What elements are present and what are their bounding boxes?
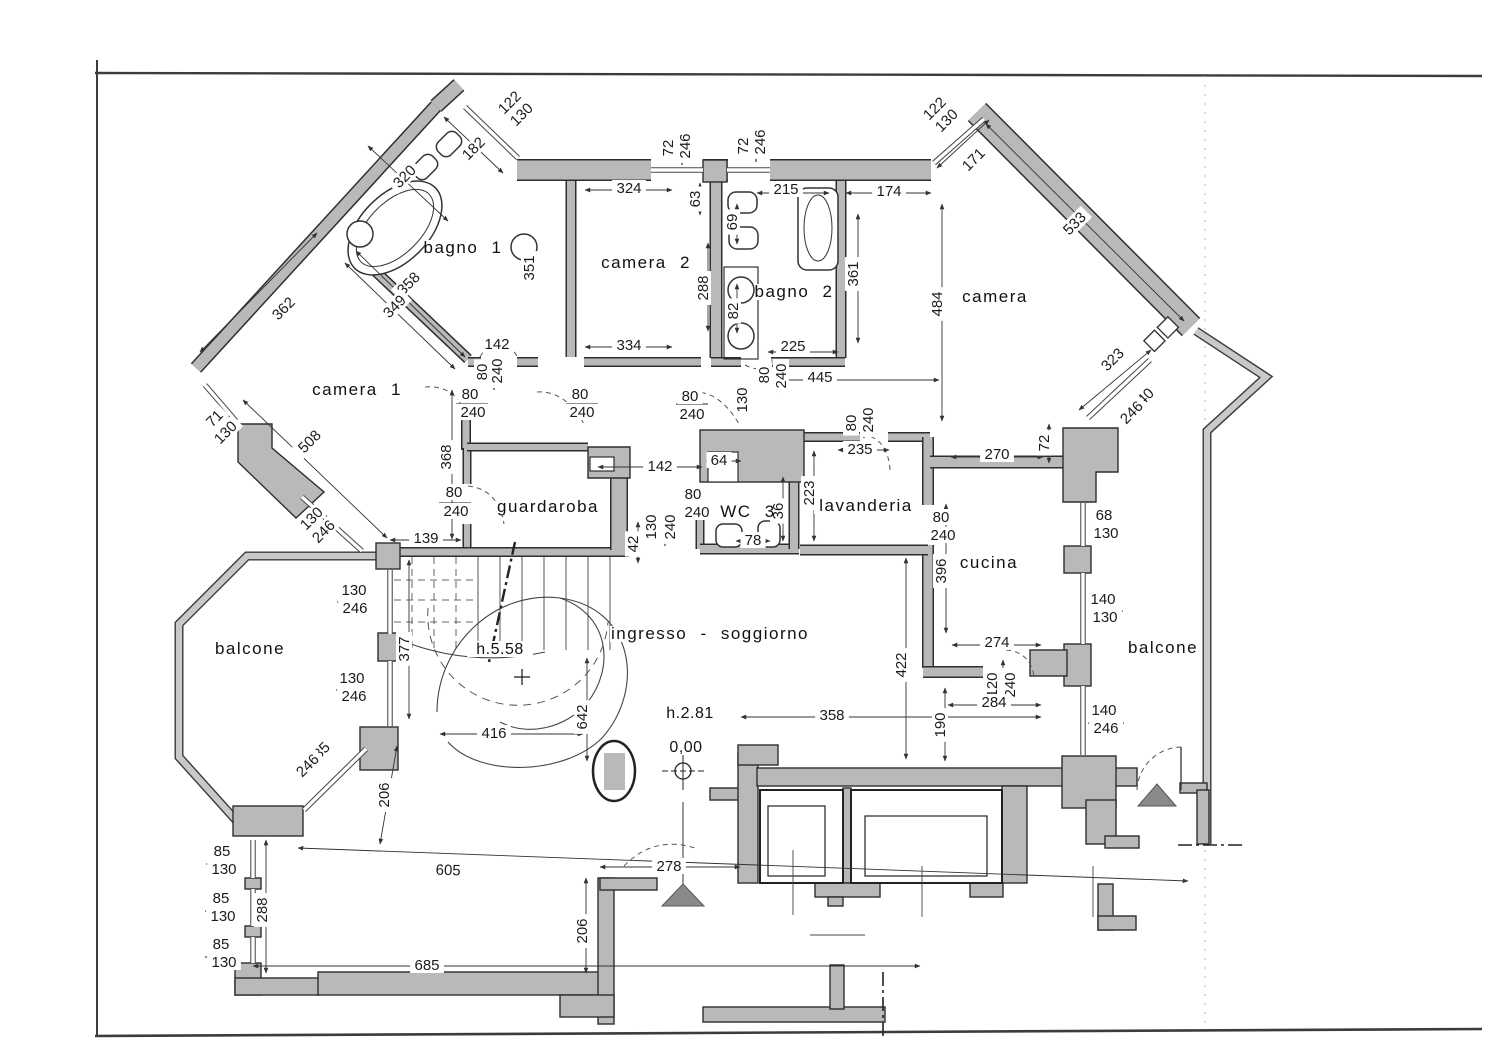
room-label: camera 1 bbox=[312, 380, 402, 399]
dimension-label: 324 bbox=[612, 180, 646, 197]
svg-text:235: 235 bbox=[847, 441, 872, 458]
svg-text:206: 206 bbox=[376, 782, 393, 807]
svg-text:0,00: 0,00 bbox=[669, 739, 702, 756]
dimension-label: 240 bbox=[489, 354, 506, 388]
dimension-label: 130 bbox=[207, 954, 241, 971]
svg-text:685: 685 bbox=[414, 957, 439, 974]
dimension-label: 130 bbox=[1089, 525, 1123, 542]
svg-text:69: 69 bbox=[724, 214, 741, 231]
svg-text:130: 130 bbox=[211, 954, 236, 971]
dimension-label: 206 bbox=[376, 778, 393, 812]
svg-text:240: 240 bbox=[569, 404, 594, 421]
svg-text:72: 72 bbox=[735, 138, 752, 155]
dimension-label: 240 bbox=[675, 406, 709, 423]
dimension-label: 85 bbox=[208, 890, 233, 907]
svg-text:351: 351 bbox=[521, 255, 538, 280]
svg-text:130: 130 bbox=[211, 861, 236, 878]
svg-text:h.5.58: h.5.58 bbox=[476, 641, 523, 658]
dimension-label: 377 bbox=[396, 632, 413, 666]
svg-text:bagno 2: bagno 2 bbox=[755, 282, 834, 301]
dimension-label: 368 bbox=[438, 440, 455, 474]
svg-text:240: 240 bbox=[662, 514, 679, 539]
dimension-label: 140 bbox=[1087, 702, 1121, 719]
svg-text:206: 206 bbox=[574, 918, 591, 943]
svg-text:64: 64 bbox=[711, 452, 728, 469]
dimension-label: 246 bbox=[1089, 720, 1123, 737]
svg-text:80: 80 bbox=[685, 486, 702, 503]
svg-text:358: 358 bbox=[819, 707, 844, 724]
svg-text:camera 1: camera 1 bbox=[312, 380, 402, 399]
entrance-triangle-icon bbox=[662, 884, 704, 906]
room-label: ingresso - soggiorno bbox=[610, 624, 810, 643]
dimension-label: 445 bbox=[803, 369, 837, 386]
dimension-label: 215 bbox=[769, 181, 803, 198]
dimension-label: 274 bbox=[980, 634, 1014, 651]
svg-text:215: 215 bbox=[773, 181, 798, 198]
dimension-label: 68 bbox=[1091, 507, 1116, 524]
dimension-label: 284 bbox=[977, 694, 1011, 711]
dimension-label: 42 bbox=[625, 531, 642, 556]
svg-text:camera 2: camera 2 bbox=[601, 253, 691, 272]
svg-text:240: 240 bbox=[679, 406, 704, 423]
svg-text:balcone: balcone bbox=[1128, 638, 1198, 657]
duct-shafts bbox=[1144, 317, 1179, 352]
svg-text:72: 72 bbox=[660, 140, 677, 157]
svg-text:288: 288 bbox=[695, 275, 712, 300]
svg-text:130: 130 bbox=[643, 514, 660, 539]
svg-text:72: 72 bbox=[1036, 435, 1053, 452]
dimension-label: 130 bbox=[207, 861, 241, 878]
dimension-label: 416 bbox=[477, 725, 511, 742]
dimension-label: 190 bbox=[932, 708, 949, 742]
dimension-label: 80 bbox=[567, 386, 592, 403]
svg-text:142: 142 bbox=[484, 336, 509, 353]
sink-icon bbox=[728, 323, 754, 349]
dimension-label: 334 bbox=[612, 337, 646, 354]
svg-text:82: 82 bbox=[725, 303, 742, 320]
dimension-label: 80 bbox=[843, 410, 860, 435]
svg-text:368: 368 bbox=[438, 444, 455, 469]
svg-text:240: 240 bbox=[773, 363, 790, 388]
dimension-label: 240 bbox=[860, 403, 877, 437]
dimension-label: 358 bbox=[815, 707, 849, 724]
svg-text:484: 484 bbox=[929, 291, 946, 316]
svg-text:80: 80 bbox=[843, 415, 860, 432]
dimension-label: 240 bbox=[773, 359, 790, 393]
dimension-label: 80 bbox=[680, 486, 705, 503]
room-label: bagno 2 bbox=[755, 282, 834, 301]
svg-text:361: 361 bbox=[845, 261, 862, 286]
annotation-label: h.2.81 bbox=[657, 705, 723, 722]
room-label: bagno 1 bbox=[424, 238, 503, 257]
dimension-label: 246 bbox=[677, 129, 694, 163]
room-label: balcone bbox=[212, 639, 287, 658]
benchmark-icon bbox=[662, 752, 704, 790]
svg-text:80: 80 bbox=[756, 367, 773, 384]
dimension-label: 288 bbox=[254, 893, 271, 927]
svg-text:guardaroba: guardaroba bbox=[497, 497, 599, 516]
svg-text:63: 63 bbox=[687, 191, 704, 208]
entrance-triangle-icon bbox=[1138, 784, 1176, 806]
dimension-label: 130 bbox=[734, 383, 751, 417]
svg-text:bagno 1: bagno 1 bbox=[424, 238, 503, 257]
svg-text:80: 80 bbox=[572, 386, 589, 403]
svg-text:139: 139 bbox=[413, 530, 438, 547]
svg-text:78: 78 bbox=[745, 532, 762, 549]
dimension-label: 85 bbox=[208, 936, 233, 953]
room-label: lavanderia bbox=[814, 496, 918, 515]
room-label: WC 3 bbox=[720, 502, 776, 521]
dimension-label: 246 bbox=[337, 688, 371, 705]
svg-text:278: 278 bbox=[656, 858, 681, 875]
svg-text:190: 190 bbox=[932, 712, 949, 737]
room-label: guardaroba bbox=[496, 497, 600, 516]
dimension-label: 82 bbox=[725, 298, 742, 323]
svg-text:240: 240 bbox=[930, 527, 955, 544]
dimension-label: 240 bbox=[926, 527, 960, 544]
svg-text:270: 270 bbox=[984, 446, 1009, 463]
elevator-shaft bbox=[760, 790, 843, 883]
svg-text:246: 246 bbox=[341, 688, 366, 705]
svg-text:288: 288 bbox=[254, 897, 271, 922]
svg-text:142: 142 bbox=[647, 458, 672, 475]
dimension-label: 140 bbox=[1086, 591, 1120, 608]
svg-text:246: 246 bbox=[342, 600, 367, 617]
dimension-label: 130 bbox=[206, 908, 240, 925]
dimension-label: 130 bbox=[337, 582, 371, 599]
dimension-label: 85 bbox=[209, 843, 234, 860]
svg-text:284: 284 bbox=[981, 694, 1006, 711]
dimension-label: 362 bbox=[266, 291, 302, 327]
svg-text:68: 68 bbox=[1096, 507, 1113, 524]
dimension-label: 323 bbox=[1095, 342, 1131, 378]
svg-text:85: 85 bbox=[214, 843, 231, 860]
svg-text:cucina: cucina bbox=[960, 553, 1018, 572]
dimension-label: 72 bbox=[1036, 430, 1053, 455]
floorplan-drawing: 1221301823203583493623513247224663288334… bbox=[0, 0, 1500, 1060]
dimension-label: 80 bbox=[928, 509, 953, 526]
dimension-label: 80 bbox=[457, 386, 482, 403]
svg-text:422: 422 bbox=[893, 652, 910, 677]
svg-text:130: 130 bbox=[210, 908, 235, 925]
room-label: camera 2 bbox=[601, 253, 691, 272]
svg-text:42: 42 bbox=[625, 536, 642, 553]
svg-text:240: 240 bbox=[460, 404, 485, 421]
svg-text:416: 416 bbox=[481, 725, 506, 742]
dimension-label: 130 bbox=[643, 510, 660, 544]
dimension-label: 142 bbox=[480, 336, 514, 353]
dimension-label: 171 bbox=[956, 142, 992, 178]
svg-text:80: 80 bbox=[446, 484, 463, 501]
svg-text:130: 130 bbox=[341, 582, 366, 599]
dimension-label: 270 bbox=[980, 446, 1014, 463]
dimension-label: 240 bbox=[456, 404, 490, 421]
dimension-label: 69 bbox=[724, 209, 741, 234]
svg-text:140: 140 bbox=[1090, 591, 1115, 608]
svg-text:605: 605 bbox=[435, 862, 461, 880]
dimension-label: 78 bbox=[740, 532, 765, 549]
dimension-label: 174 bbox=[872, 183, 906, 200]
svg-text:225: 225 bbox=[780, 338, 805, 355]
annotation-label: h.5.58 bbox=[467, 641, 533, 658]
svg-text:240: 240 bbox=[860, 407, 877, 432]
svg-text:ingresso - soggiorno: ingresso - soggiorno bbox=[611, 624, 809, 643]
dimension-label: 605 bbox=[431, 861, 465, 879]
svg-text:240: 240 bbox=[489, 358, 506, 383]
dimension-label: 685 bbox=[410, 957, 444, 974]
dimension-label: 206 bbox=[574, 914, 591, 948]
svg-text:324: 324 bbox=[616, 180, 641, 197]
dimension-label: 246 bbox=[338, 600, 372, 617]
svg-text:246: 246 bbox=[677, 133, 694, 158]
dimension-label: 240 bbox=[565, 404, 599, 421]
svg-text:85: 85 bbox=[213, 890, 230, 907]
svg-text:246: 246 bbox=[752, 129, 769, 154]
svg-text:334: 334 bbox=[616, 337, 641, 354]
svg-text:246: 246 bbox=[1093, 720, 1118, 737]
svg-text:WC 3: WC 3 bbox=[720, 502, 776, 521]
svg-text:camera: camera bbox=[962, 287, 1028, 306]
dimension-label: 142 bbox=[643, 458, 677, 475]
svg-text:130: 130 bbox=[1092, 609, 1117, 626]
sink-icon bbox=[347, 221, 373, 247]
svg-text:445: 445 bbox=[807, 369, 832, 386]
dimension-label: 225 bbox=[776, 338, 810, 355]
dimension-label: 80 bbox=[756, 362, 773, 387]
dimension-label: 80 bbox=[677, 388, 702, 405]
svg-text:80: 80 bbox=[933, 509, 950, 526]
center-cross-icon bbox=[514, 669, 530, 685]
floorplan-page: 1221301823203583493623513247224663288334… bbox=[0, 0, 1500, 1060]
svg-text:85: 85 bbox=[213, 936, 230, 953]
dimension-label: 182 bbox=[456, 131, 492, 167]
dimension-label: 139 bbox=[409, 530, 443, 547]
dimension-label: 396 bbox=[933, 554, 950, 588]
dimension-label: 64 bbox=[706, 452, 731, 469]
dimension-label: 361 bbox=[845, 257, 862, 291]
dimension-label: 130 bbox=[335, 670, 369, 687]
svg-text:274: 274 bbox=[984, 634, 1009, 651]
svg-text:130: 130 bbox=[734, 387, 751, 412]
svg-text:80: 80 bbox=[682, 388, 699, 405]
dimension-label: 130 bbox=[1088, 609, 1122, 626]
dimension-label: 422 bbox=[893, 648, 910, 682]
svg-text:377: 377 bbox=[396, 636, 413, 661]
room-label: camera bbox=[962, 287, 1028, 306]
svg-text:240: 240 bbox=[684, 504, 709, 521]
svg-text:lavanderia: lavanderia bbox=[819, 496, 912, 515]
door-swing-arc bbox=[1137, 747, 1181, 790]
svg-text:174: 174 bbox=[876, 183, 901, 200]
dimension-label: 72 bbox=[735, 133, 752, 158]
dimension-label: 508 bbox=[292, 424, 328, 460]
dimension-label: 246 bbox=[752, 125, 769, 159]
svg-text:642: 642 bbox=[574, 704, 591, 729]
dimension-label: 240 bbox=[680, 504, 714, 521]
annotation-label: 0,00 bbox=[663, 739, 709, 756]
dimension-label: 642 bbox=[574, 700, 591, 734]
dimension-label: 240 bbox=[662, 510, 679, 544]
svg-text:130: 130 bbox=[1093, 525, 1118, 542]
toilet-icon bbox=[716, 524, 742, 547]
svg-text:80: 80 bbox=[462, 386, 479, 403]
dimension-label: 351 bbox=[521, 251, 538, 285]
svg-text:130: 130 bbox=[339, 670, 364, 687]
svg-text:balcone: balcone bbox=[215, 639, 285, 658]
svg-text:240: 240 bbox=[443, 503, 468, 520]
dimension-label: 240 bbox=[439, 503, 473, 520]
dimension-label: 63 bbox=[687, 186, 704, 211]
svg-text:140: 140 bbox=[1091, 702, 1116, 719]
svg-text:h.2.81: h.2.81 bbox=[666, 705, 713, 722]
dimension-label: 80 bbox=[441, 484, 466, 501]
room-label: cucina bbox=[956, 553, 1022, 572]
dimension-label: 484 bbox=[929, 287, 946, 321]
dimension-label: 288 bbox=[695, 271, 712, 305]
dimension-label: 72 bbox=[660, 135, 677, 160]
svg-text:396: 396 bbox=[933, 558, 950, 583]
dimension-label: 278 bbox=[652, 858, 686, 875]
dimension-label: 235 bbox=[843, 441, 877, 458]
room-label: balcone bbox=[1125, 638, 1200, 657]
